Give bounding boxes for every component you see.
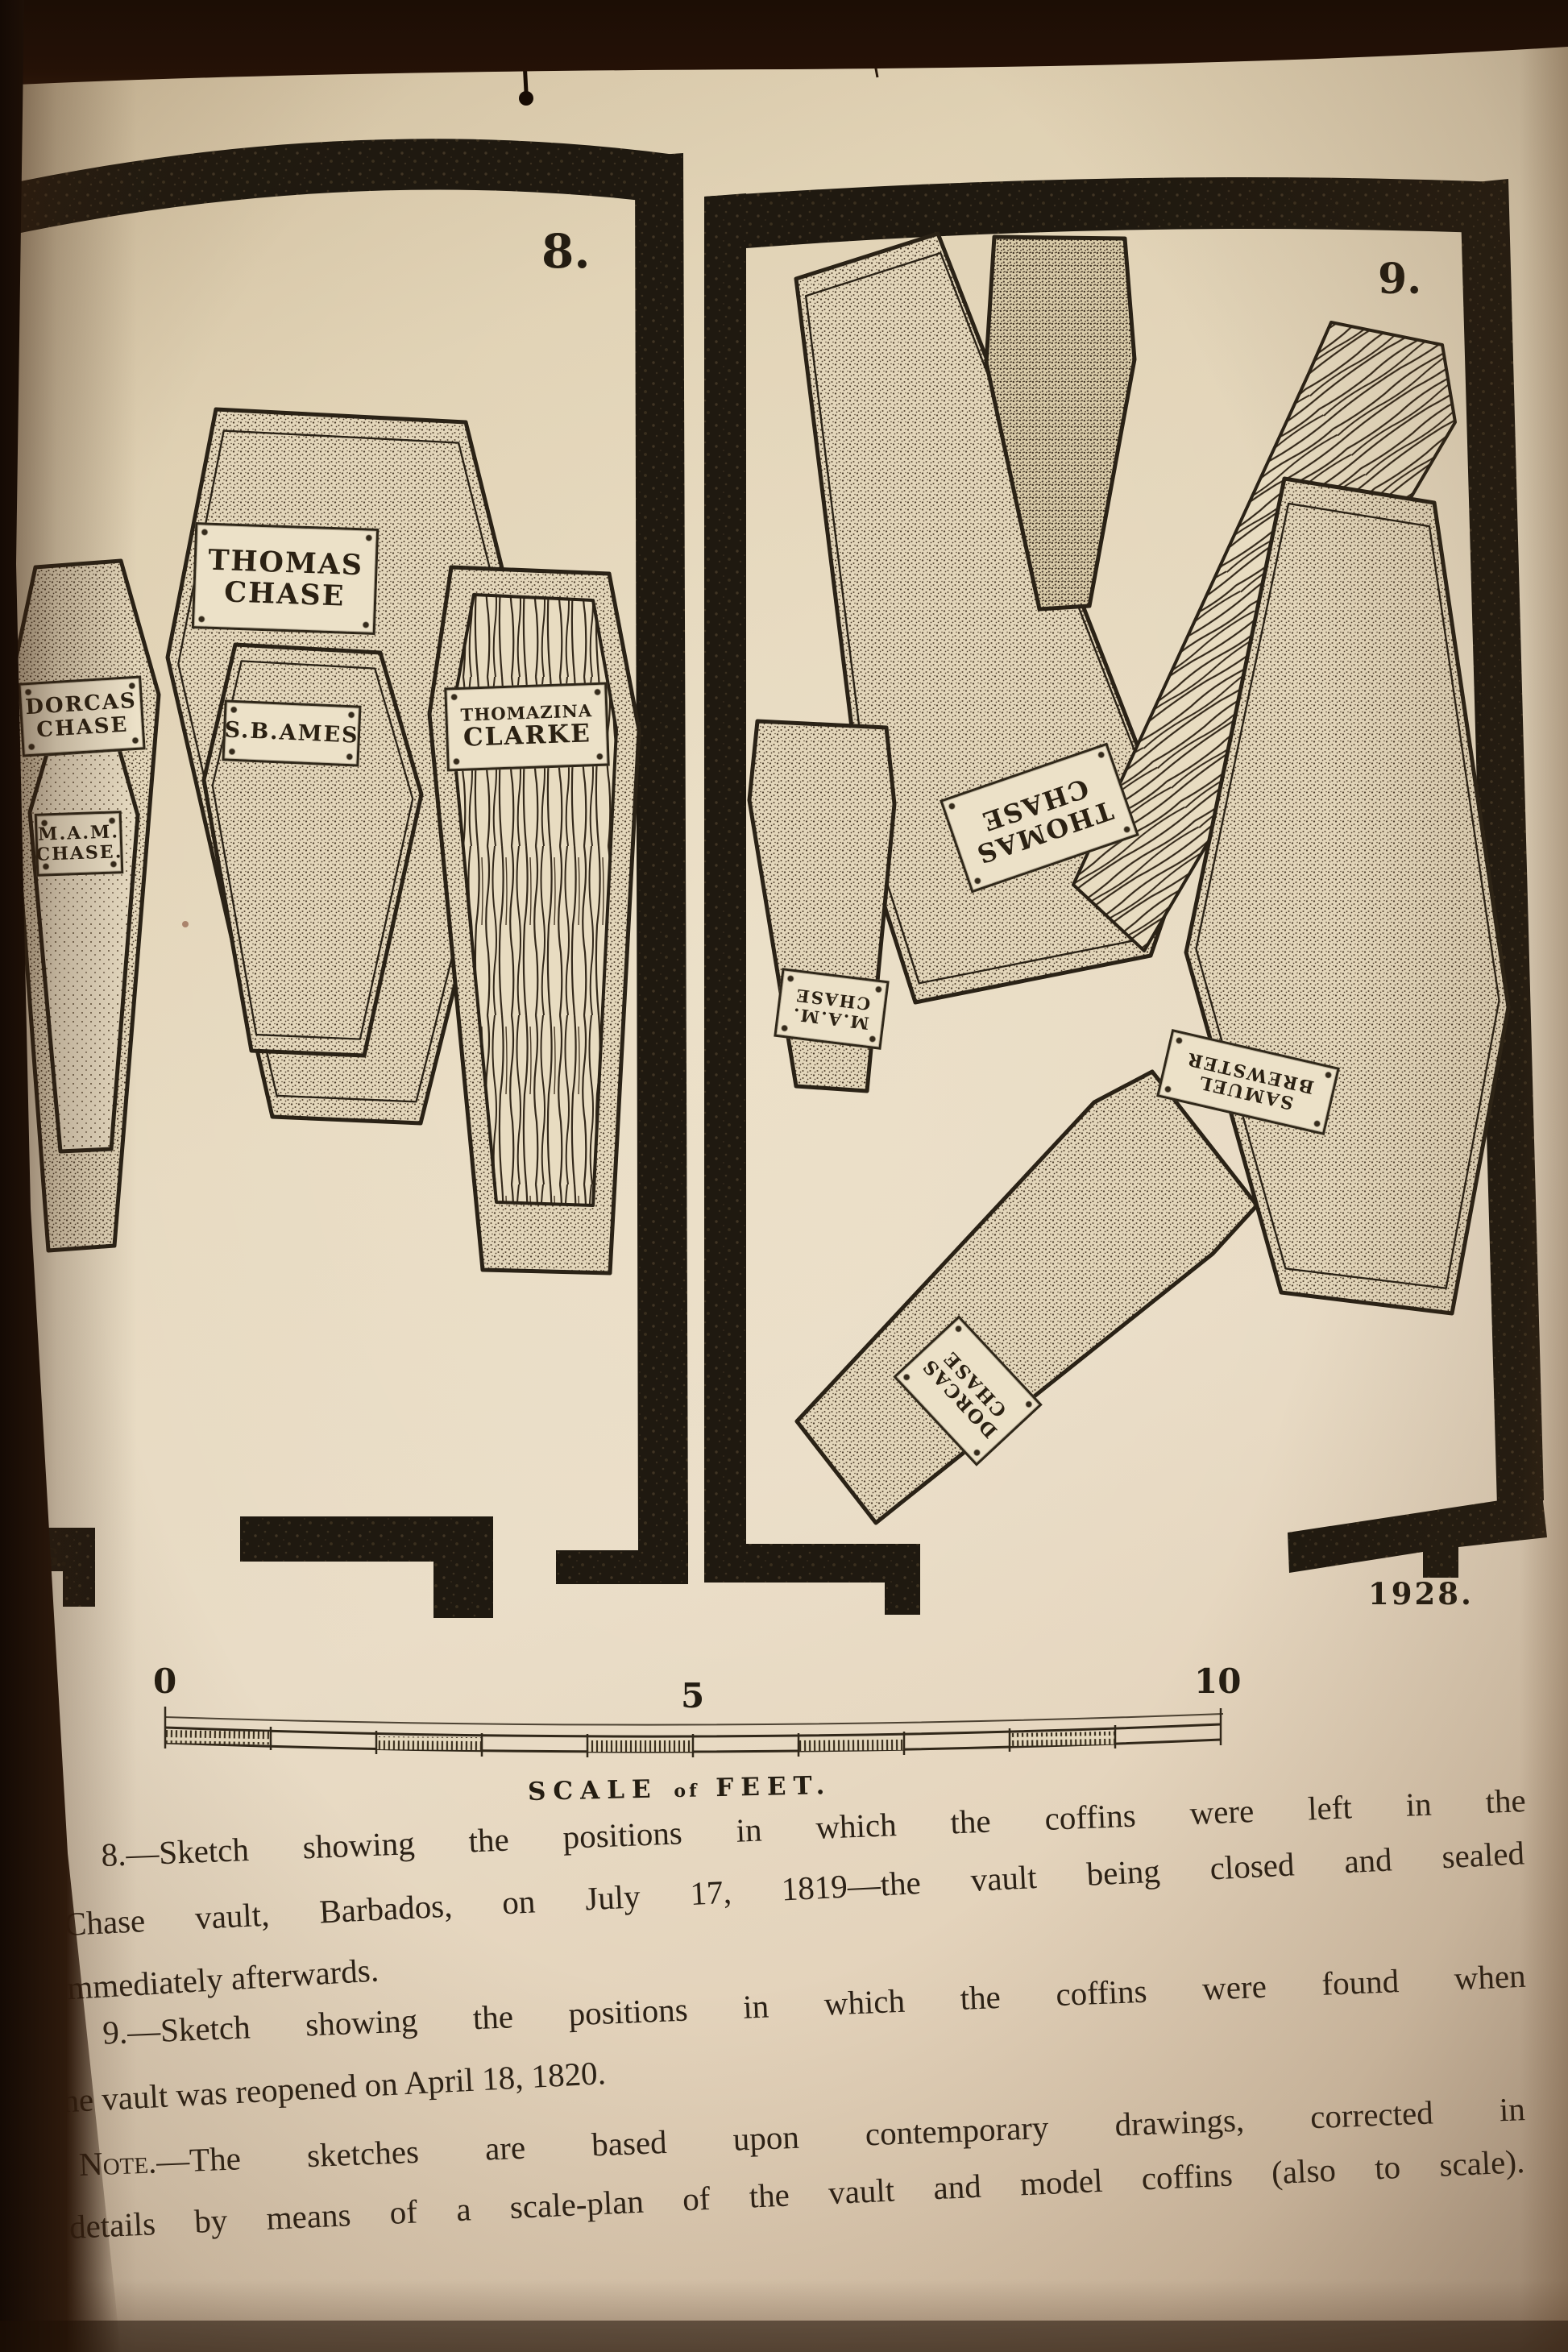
page-pin (519, 47, 877, 106)
nameplate-fig8-mam-chase: M.A.M. CHASE. (35, 811, 124, 877)
artist-initials: I.T.G. (0, 1544, 69, 1572)
caption-lead: Note. (78, 2143, 157, 2183)
nameplate-line: CHASE (36, 714, 130, 743)
fig9-coffin-dorcas-chase (797, 1072, 1257, 1523)
nameplate-fig8-dorcas-chase: DORCAS CHASE (18, 675, 145, 757)
scale-caption-word: FEET. (716, 1771, 832, 1802)
fig8-bottom-wall-mid (240, 1516, 493, 1618)
fig8-number: 8. (541, 224, 591, 279)
year-mark-1928: 1928. (1368, 1576, 1474, 1612)
scale-tick-5: 5 (681, 1676, 704, 1715)
age-spot (182, 921, 189, 927)
nameplate-line: CHASE (224, 576, 346, 612)
nameplate-fig9-mam-chase: M.A.M. CHASE (774, 968, 889, 1050)
nameplate-fig8-thomas-chase: THOMAS CHASE (192, 522, 379, 635)
fig9-number: 9. (1378, 255, 1421, 304)
caption-lead: Fig. 8. (0, 1836, 127, 1877)
nameplate-line: S.B.AMES (224, 718, 359, 748)
caption-lead: Fig. 9. (0, 2013, 128, 2055)
fig9-bottom-wall-right (1288, 1494, 1547, 1578)
scale-caption-word: SCALE (528, 1775, 658, 1807)
nameplate-line: CHASE. (35, 842, 122, 865)
nameplate-line: CLARKE (463, 720, 591, 753)
scale-tick-10: 10 (1194, 1661, 1241, 1701)
nameplate-fig8-thomazina-clarke: THOMAZINA CLARKE (444, 682, 610, 772)
nameplate-fig8-sb-ames: S.B.AMES (222, 699, 361, 766)
scale-tick-0: 0 (153, 1661, 176, 1701)
scale-caption-word: of (674, 1780, 700, 1802)
book-page-photo: DORCAS CHASE M.A.M. CHASE. THOMAS CHASE … (0, 0, 1568, 2352)
